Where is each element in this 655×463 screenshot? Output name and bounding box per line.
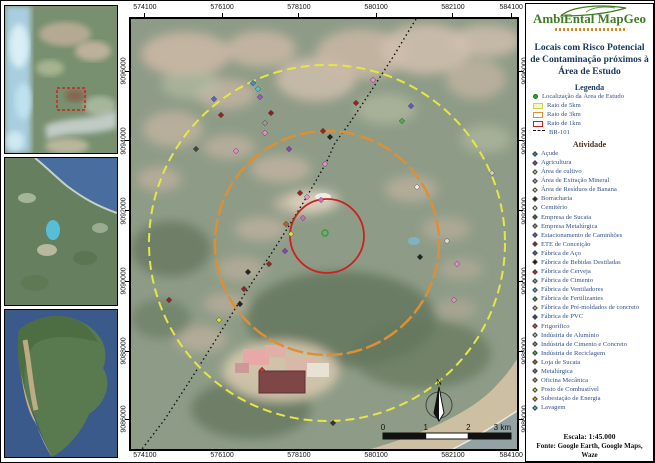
activity-item: Lavagem bbox=[533, 404, 650, 412]
activity-marker-icon bbox=[532, 214, 538, 220]
activity-marker-icon bbox=[532, 169, 538, 175]
north-label: N bbox=[436, 378, 442, 387]
frame-tick bbox=[519, 71, 523, 72]
frame-tick bbox=[519, 351, 523, 352]
inset-map-northeast-coast bbox=[4, 157, 118, 306]
legend-item: Raio de 3km bbox=[533, 111, 650, 119]
activity-item-label: Indústria de Cimento e Concreto bbox=[541, 341, 627, 349]
activity-item-label: Empresa Metalúrgica bbox=[541, 223, 597, 231]
map-layout-page: 5741005761005781005801005821005841005741… bbox=[0, 0, 655, 463]
activity-item: Fábrica de Bebidas Destiladas bbox=[533, 259, 650, 267]
activity-marker-icon bbox=[532, 160, 538, 166]
legend-item-label: Localização da Área de Estudo bbox=[542, 93, 624, 101]
activity-marker-icon bbox=[532, 314, 538, 320]
legend-item: Localização da Área de Estudo bbox=[533, 93, 650, 101]
activity-item-label: Açude bbox=[541, 150, 558, 158]
scale-bar-label: 3 km bbox=[494, 423, 512, 432]
activity-item: Subestação de Energia bbox=[533, 395, 650, 403]
activity-marker-icon bbox=[532, 359, 538, 365]
map-title: Locais com Risco Potencial de Contaminaç… bbox=[529, 43, 650, 79]
inset-column bbox=[4, 5, 118, 460]
radius-box-icon bbox=[533, 103, 543, 109]
leaf-icon bbox=[531, 4, 651, 18]
activity-item-label: Fábrica de Cerveja bbox=[541, 268, 591, 276]
activity-marker-icon bbox=[532, 232, 538, 238]
activity-item-label: Loja de Sucata bbox=[541, 359, 580, 367]
activity-item-label: Área de cultivo bbox=[541, 168, 582, 176]
legend-item: BR-101 bbox=[533, 129, 650, 137]
activity-marker-icon bbox=[532, 323, 538, 329]
activity-item-label: Fábrica de Pré-moldados de concreto bbox=[541, 304, 639, 312]
scale-bar-segment bbox=[468, 433, 511, 439]
main-map-area: 5741005761005781005801005821005841005741… bbox=[119, 1, 531, 463]
easting-label-top: 580100 bbox=[364, 4, 387, 11]
activity-item-label: Fábrica de Aço bbox=[541, 250, 581, 258]
activity-marker-icon bbox=[532, 278, 538, 284]
easting-label-bottom: 578100 bbox=[287, 452, 310, 459]
activity-item: Borracharia bbox=[533, 195, 650, 203]
radius-box-icon bbox=[533, 112, 543, 118]
easting-label-bottom: 574100 bbox=[133, 452, 156, 459]
activity-item: Loja de Sucata bbox=[533, 359, 650, 367]
activity-list: AçudeAgriculturaÁrea de cultivoÁrea de E… bbox=[529, 150, 650, 413]
legend-heading: Legenda bbox=[529, 83, 650, 92]
study-location-icon bbox=[533, 94, 538, 99]
activity-item-label: Oficina Mecânica bbox=[541, 377, 588, 385]
activity-item: Indústria de Reciclagem bbox=[533, 350, 650, 358]
activity-item: Indústria de Cimento e Concreto bbox=[533, 341, 650, 349]
legend-item-label: Raio de 5km bbox=[547, 102, 581, 110]
activity-item: Oficina Mecânica bbox=[533, 377, 650, 385]
activity-item-label: Fábrica de Bebidas Destiladas bbox=[541, 259, 621, 267]
activity-item-label: Metalúrgica bbox=[541, 368, 573, 376]
activity-item-label: Agricultura bbox=[541, 159, 571, 167]
activity-item: Empresa de Sucata bbox=[533, 214, 650, 222]
road-line-icon bbox=[533, 130, 545, 131]
activity-item-label: Fábrica de Cimento bbox=[541, 277, 593, 285]
activity-item: Área de Resíduos de Banana bbox=[533, 186, 650, 194]
panel-footer: Escala: 1:45.000 Fonte: Google Earth, Go… bbox=[529, 432, 650, 459]
activity-item: Açude bbox=[533, 150, 650, 158]
legend-item-label: Raio de 1km bbox=[547, 120, 581, 128]
activity-item: Agricultura bbox=[533, 159, 650, 167]
easting-label-top: 584100 bbox=[500, 4, 523, 11]
activity-marker-icon bbox=[532, 296, 538, 302]
activity-marker-icon bbox=[532, 387, 538, 393]
easting-label-bottom: 584100 bbox=[500, 452, 523, 459]
activity-item-label: Indústria de Alumínio bbox=[541, 332, 599, 340]
legend-item-label: BR-101 bbox=[549, 129, 570, 137]
inset-map-regional bbox=[4, 5, 118, 154]
activity-marker-icon bbox=[532, 396, 538, 402]
activity-item-label: Cemitério bbox=[541, 204, 567, 212]
activity-item: Fábrica de Aço bbox=[533, 250, 650, 258]
frame-tick bbox=[519, 281, 523, 282]
activity-marker-icon bbox=[532, 223, 538, 229]
map-frame: N 0123 km bbox=[129, 17, 519, 451]
inset-coast-image bbox=[5, 158, 117, 305]
activity-item: Área de cultivo bbox=[533, 168, 650, 176]
logo: AmbiEntal MapGeo bbox=[529, 6, 650, 40]
activity-item: Empresa Metalúrgica bbox=[533, 223, 650, 231]
activity-item-label: Indústria de Reciclagem bbox=[541, 350, 605, 358]
activity-item-label: Posto de Combustível bbox=[541, 386, 599, 394]
activity-marker-icon bbox=[532, 405, 538, 411]
activity-item-label: Frigorífico bbox=[541, 323, 570, 331]
easting-label-bottom: 576100 bbox=[210, 452, 233, 459]
activity-item: Área de Extração Mineral bbox=[533, 177, 650, 185]
inset-continent-image bbox=[5, 310, 117, 457]
activity-marker-icon bbox=[532, 341, 538, 347]
activity-item: Cemitério bbox=[533, 204, 650, 212]
activity-item: Fábrica de PVC bbox=[533, 313, 650, 321]
activity-item-label: Fábrica de PVC bbox=[541, 313, 583, 321]
activity-marker-icon bbox=[532, 332, 538, 338]
activity-item: Fábrica de Cimento bbox=[533, 277, 650, 285]
activity-item-label: Área de Extração Mineral bbox=[541, 177, 609, 185]
activity-marker-icon bbox=[532, 369, 538, 375]
activity-marker-icon bbox=[532, 260, 538, 266]
easting-label-top: 576100 bbox=[210, 4, 233, 11]
legend-list: Localização da Área de EstudoRaio de 5km… bbox=[529, 93, 650, 138]
scale-bar-segment bbox=[426, 433, 469, 439]
activity-item: Fábrica de Cerveja bbox=[533, 268, 650, 276]
legend-item-label: Raio de 3km bbox=[547, 111, 581, 119]
activity-heading: Atividade bbox=[529, 140, 650, 149]
inset-map-south-america bbox=[4, 309, 118, 458]
easting-label-top: 578100 bbox=[287, 4, 310, 11]
activity-item-label: Área de Resíduos de Banana bbox=[541, 186, 617, 194]
activity-item: ETE de Conceição bbox=[533, 241, 650, 249]
activity-item-label: Estacionamento de Caminhões bbox=[541, 232, 622, 240]
radius-box-icon bbox=[533, 121, 543, 127]
activity-item-label: Empresa de Sucata bbox=[541, 214, 591, 222]
activity-item-label: Fábrica de Fertilizantes bbox=[541, 295, 603, 303]
activity-marker-icon bbox=[532, 305, 538, 311]
inset-regional-image bbox=[5, 6, 117, 153]
activity-item: Posto de Combustível bbox=[533, 386, 650, 394]
activity-item-label: Subestação de Energia bbox=[541, 395, 601, 403]
activity-item: Estacionamento de Caminhões bbox=[533, 232, 650, 240]
legend-item: Raio de 5km bbox=[533, 102, 650, 110]
activity-marker-icon bbox=[532, 350, 538, 356]
scale-bar-label: 2 bbox=[466, 423, 471, 432]
activity-marker-icon bbox=[532, 196, 538, 202]
easting-label-bottom: 580100 bbox=[364, 452, 387, 459]
legend-item: Raio de 1km bbox=[533, 120, 650, 128]
easting-label-bottom: 582100 bbox=[441, 452, 464, 459]
activity-item: Fábrica de Ventiladores bbox=[533, 286, 650, 294]
activity-marker-icon bbox=[532, 178, 538, 184]
easting-label-top: 574100 bbox=[133, 4, 156, 11]
activity-marker-icon bbox=[532, 269, 538, 275]
satellite-map-image: N 0123 km bbox=[131, 19, 517, 449]
activity-marker-icon bbox=[532, 287, 538, 293]
activity-item-label: Fábrica de Ventiladores bbox=[541, 286, 603, 294]
activity-item: Fábrica de Pré-moldados de concreto bbox=[533, 304, 650, 312]
activity-marker-icon bbox=[532, 151, 538, 157]
scale-text: Escala: 1:45.000 bbox=[529, 432, 650, 441]
activity-marker-icon bbox=[532, 187, 538, 193]
scale-bar-label: 1 bbox=[423, 423, 428, 432]
activity-item: Frigorífico bbox=[533, 323, 650, 331]
activity-item-label: Lavagem bbox=[541, 404, 566, 412]
legend-panel: AmbiEntal MapGeo Locais com Risco Potenc… bbox=[525, 3, 654, 462]
easting-label-top: 582100 bbox=[441, 4, 464, 11]
activity-marker-icon bbox=[532, 251, 538, 257]
activity-item: Indústria de Alumínio bbox=[533, 332, 650, 340]
activity-item-label: Borracharia bbox=[541, 195, 572, 203]
frame-tick bbox=[519, 210, 523, 211]
frame-tick bbox=[519, 419, 523, 420]
source-text: Fonte: Google Earth, Google Maps, Waze bbox=[529, 442, 650, 459]
activity-marker-icon bbox=[532, 205, 538, 211]
activity-marker-icon bbox=[532, 241, 538, 247]
scale-bar-segment bbox=[383, 433, 426, 439]
frame-tick bbox=[519, 140, 523, 141]
scale-bar-label: 0 bbox=[381, 423, 386, 432]
activity-marker-icon bbox=[532, 378, 538, 384]
activity-item-label: ETE de Conceição bbox=[541, 241, 590, 249]
activity-item: Metalúrgica bbox=[533, 368, 650, 376]
activity-item: Fábrica de Fertilizantes bbox=[533, 295, 650, 303]
